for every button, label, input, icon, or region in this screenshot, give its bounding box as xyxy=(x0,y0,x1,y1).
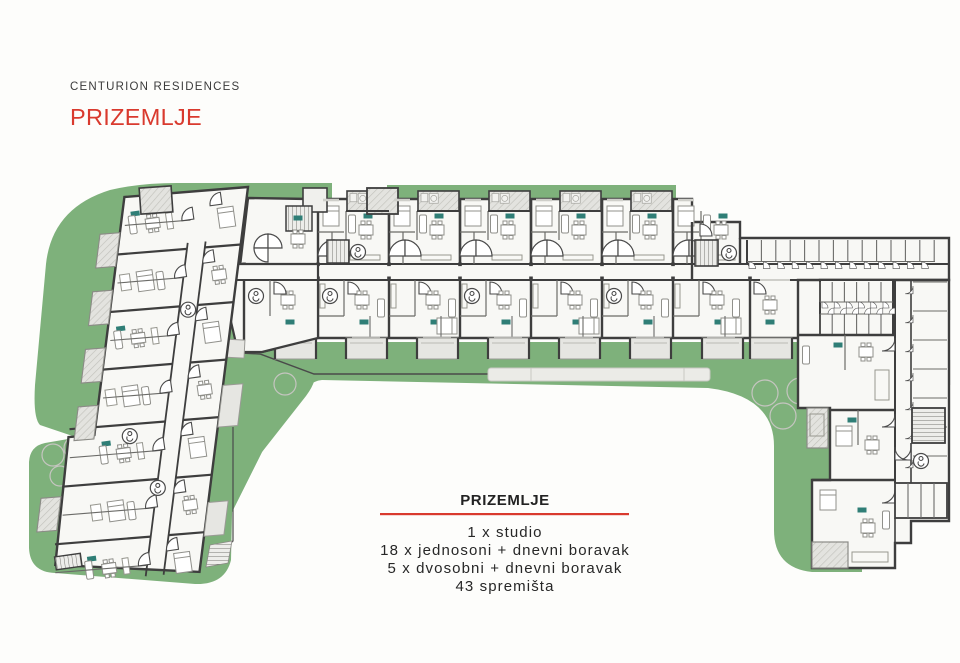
svg-text:1 x studio: 1 x studio xyxy=(467,524,542,541)
svg-text:18 x jednosoni + dnevni borava: 18 x jednosoni + dnevni boravak xyxy=(380,542,630,559)
svg-text:5 x dvosobni + dnevni boravak: 5 x dvosobni + dnevni boravak xyxy=(388,560,623,577)
svg-text:CENTURION RESIDENCES: CENTURION RESIDENCES xyxy=(70,81,240,93)
svg-text:43 spremišta: 43 spremišta xyxy=(455,578,554,595)
svg-text:PRIZEMLJE: PRIZEMLJE xyxy=(460,492,550,509)
svg-text:PRIZEMLJE: PRIZEMLJE xyxy=(70,104,202,130)
